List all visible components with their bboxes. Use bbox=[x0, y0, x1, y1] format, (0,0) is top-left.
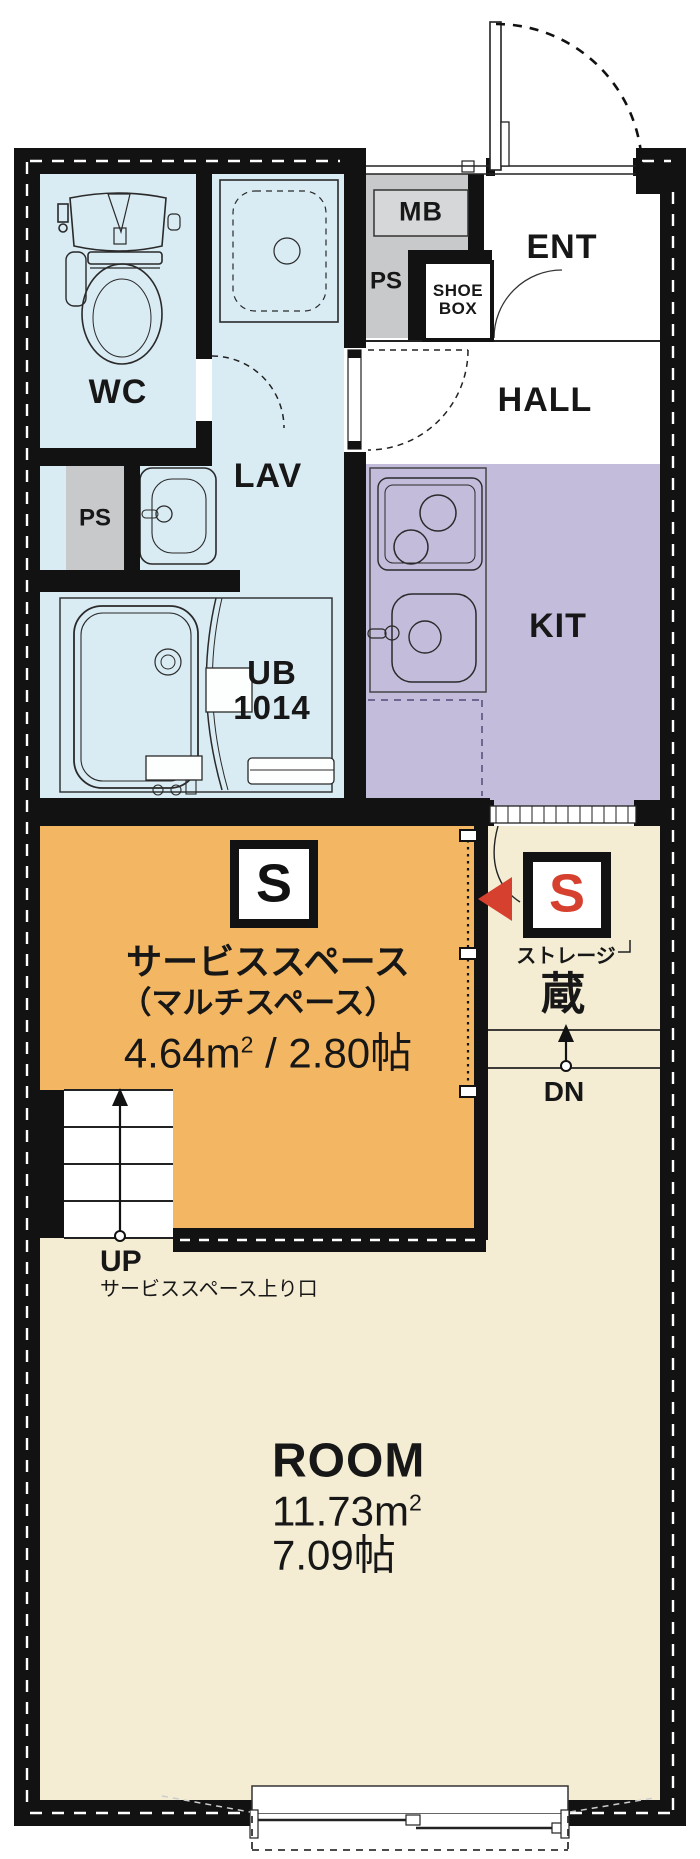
shoebox-label-line2: BOX bbox=[433, 300, 483, 318]
ub-label-line1: UB bbox=[233, 656, 310, 691]
service-area-tatami: / 2.80帖 bbox=[253, 1030, 412, 1077]
up-label: UP bbox=[100, 1246, 142, 1278]
room-area-sup: 2 bbox=[409, 1490, 422, 1516]
room-tatami-label: 7.09帖 bbox=[272, 1534, 396, 1579]
dn-label: DN bbox=[544, 1077, 584, 1107]
service-subname-label: （マルチスペース） bbox=[120, 988, 395, 1021]
room-area-m2: 11.73m bbox=[272, 1488, 409, 1535]
ub-label: UB 1014 bbox=[233, 656, 310, 726]
ps-right-label: PS bbox=[370, 268, 402, 293]
shoebox-label: SHOE BOX bbox=[433, 282, 483, 318]
shoebox-label-line1: SHOE bbox=[433, 282, 483, 300]
mb-label: MB bbox=[399, 198, 443, 227]
hall-label: HALL bbox=[498, 382, 593, 418]
wc-label: WC bbox=[89, 374, 148, 410]
kitchen-floor bbox=[366, 464, 660, 808]
service-name-label: サービススペース bbox=[126, 943, 410, 981]
ps-left-label: PS bbox=[79, 505, 111, 530]
storage-label: ストレージ bbox=[516, 946, 616, 967]
service-area-m2: 4.64m bbox=[124, 1030, 241, 1077]
storage-kanji-label: 蔵 bbox=[541, 972, 585, 1019]
storage-marker: S bbox=[549, 865, 585, 922]
up-note-label: サービススペース上り口 bbox=[100, 1279, 318, 1300]
service-marker: S bbox=[256, 855, 292, 912]
stairs-icon bbox=[64, 1088, 173, 1241]
lav-label: LAV bbox=[234, 458, 302, 494]
ub-label-line2: 1014 bbox=[233, 691, 310, 726]
room-area-label: 11.73m2 bbox=[272, 1490, 422, 1535]
room-label: ROOM bbox=[272, 1437, 425, 1488]
floorplan: WC LAV PS MB PS SHOE BOX ENT HALL KIT UB… bbox=[0, 0, 700, 1859]
kit-label: KIT bbox=[529, 608, 587, 644]
service-area-label: 4.64m2 / 2.80帖 bbox=[124, 1032, 412, 1077]
floorplan-drawing bbox=[0, 0, 700, 1859]
ent-label: ENT bbox=[527, 229, 598, 265]
service-area-sup: 2 bbox=[241, 1032, 254, 1058]
storage-hatch-opening bbox=[490, 806, 636, 823]
